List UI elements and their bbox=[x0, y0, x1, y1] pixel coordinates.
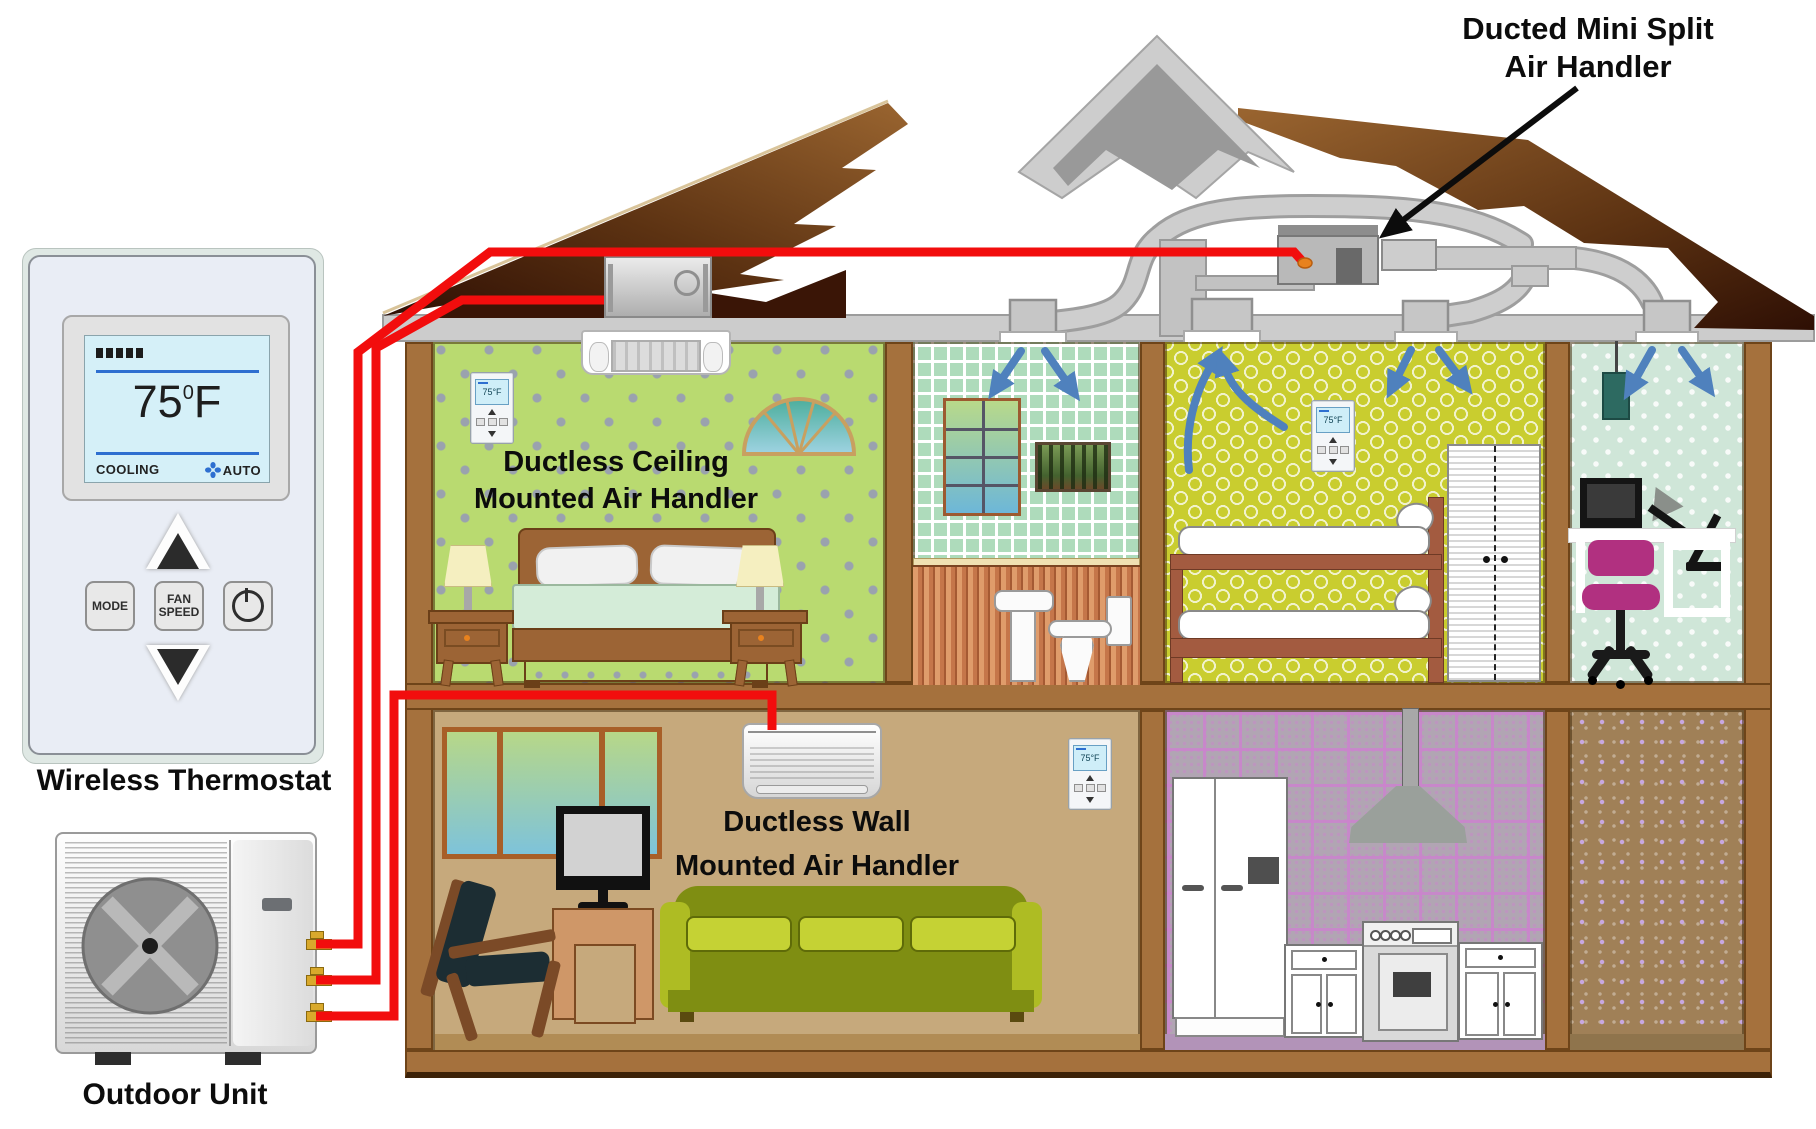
wall-thermostat-living: 75°F bbox=[1068, 738, 1112, 810]
refrigerator-base bbox=[1175, 1017, 1285, 1037]
wall-thermostat-bedroom: 75°F bbox=[470, 372, 514, 444]
label-ducted-air-handler: Ducted Mini SplitAir Handler bbox=[1408, 10, 1768, 86]
thermostat-display: 75°F bbox=[475, 379, 509, 405]
service-valve bbox=[310, 967, 324, 975]
thermostat-display: 75°F bbox=[1316, 407, 1350, 433]
wall-living-kitchen bbox=[1140, 710, 1165, 1050]
bathroom-window bbox=[943, 398, 1021, 516]
couch-cushion bbox=[686, 916, 792, 952]
down-arrow-icon bbox=[1086, 797, 1094, 803]
diagram-canvas: 75°F 75°F 75°F 750F COOLING bbox=[0, 0, 1816, 1129]
thermostat-lcd: 750F COOLING AUTO bbox=[84, 335, 270, 483]
couch-cushion bbox=[910, 916, 1016, 952]
up-arrow-icon bbox=[1086, 775, 1094, 781]
fan-icon bbox=[205, 462, 221, 478]
table-lamp bbox=[736, 545, 784, 587]
gable-outer bbox=[1019, 36, 1294, 198]
service-valve bbox=[306, 975, 332, 986]
wireless-thermostat: 750F COOLING AUTO MODE FANSPEED bbox=[28, 255, 316, 755]
toilet-seat bbox=[1048, 620, 1112, 638]
wall-bathroom-kids bbox=[1140, 342, 1165, 683]
label-wireless-thermostat: Wireless Thermostat bbox=[8, 764, 360, 798]
down-arrow-icon bbox=[1329, 459, 1337, 465]
fridge-dispenser bbox=[1248, 857, 1279, 884]
service-valve bbox=[310, 931, 324, 939]
empty-room-floor bbox=[1570, 1034, 1744, 1050]
duct-bathroom-supply bbox=[1042, 206, 1522, 323]
couch-cushion bbox=[798, 916, 904, 952]
cassette-logo-icon bbox=[674, 270, 700, 296]
thermostat-display: 75°F bbox=[1073, 745, 1107, 771]
chair-caster bbox=[1588, 676, 1597, 685]
cassette-flap bbox=[703, 342, 723, 372]
down-arrow-icon bbox=[488, 431, 496, 437]
return-duct-column bbox=[1160, 240, 1206, 336]
outdoor-unit-divider bbox=[229, 840, 231, 1046]
table-lamp bbox=[444, 545, 492, 587]
thermostat-buttons bbox=[1074, 784, 1106, 792]
air-handler-platform bbox=[1196, 276, 1314, 290]
label-ceiling-air-handler: Ductless CeilingMounted Air Handler bbox=[400, 444, 832, 518]
temperature-readout: 750F bbox=[85, 376, 269, 428]
wall-bedroom-bathroom bbox=[885, 342, 913, 683]
up-arrow-icon bbox=[488, 409, 496, 415]
up-arrow-icon bbox=[157, 533, 199, 569]
closet-knob bbox=[1501, 556, 1508, 563]
bed-leg bbox=[752, 680, 768, 688]
duct-kids-supply bbox=[1438, 266, 1528, 317]
fan-status: AUTO bbox=[205, 462, 261, 478]
bunkbed-rail bbox=[1170, 554, 1442, 570]
ceiling-vent-kids bbox=[1395, 301, 1457, 343]
range-hood-chimney bbox=[1402, 708, 1419, 788]
up-arrow-icon bbox=[1329, 437, 1337, 443]
wall-kids-office bbox=[1545, 342, 1570, 683]
outdoor-unit-foot bbox=[225, 1052, 261, 1065]
cassette-flap bbox=[589, 342, 609, 372]
office-chair-stem bbox=[1616, 610, 1625, 652]
supply-trunk-stub bbox=[1512, 266, 1548, 286]
couch-leg bbox=[1010, 1012, 1024, 1022]
wall-kitchen-empty bbox=[1545, 710, 1570, 1050]
armchair-seat-cushion bbox=[465, 951, 551, 987]
ducted-air-handler-unit bbox=[1278, 225, 1436, 284]
power-button[interactable] bbox=[223, 581, 273, 631]
roof-right-slope bbox=[1238, 108, 1814, 330]
down-arrow-icon bbox=[157, 649, 199, 685]
ceiling-cassette-unit bbox=[581, 330, 731, 375]
outdoor-unit-handle bbox=[262, 898, 292, 911]
line-connector-dot bbox=[1298, 258, 1312, 268]
outdoor-unit-panel bbox=[233, 840, 313, 1046]
outdoor-fan bbox=[65, 842, 227, 1044]
room-empty bbox=[1570, 710, 1744, 1050]
thermostat-buttons bbox=[1317, 446, 1349, 454]
chair-caster bbox=[1644, 676, 1653, 685]
outdoor-unit-foot bbox=[95, 1052, 131, 1065]
pendant-light bbox=[1602, 372, 1630, 420]
label-pointer-arrow bbox=[1398, 88, 1577, 224]
tv-table bbox=[552, 908, 654, 1020]
label-wall-air-handler: Ductless WallMounted Air Handler bbox=[592, 800, 1042, 888]
service-valve bbox=[306, 939, 332, 950]
signal-bars-icon bbox=[96, 345, 146, 363]
nightstand bbox=[436, 622, 508, 664]
nightstand bbox=[730, 622, 802, 664]
cassette-attic-box bbox=[604, 256, 712, 318]
wall-mounted-air-handler bbox=[742, 723, 882, 799]
bunkbed-mattress-top bbox=[1178, 526, 1430, 556]
toilet-tank bbox=[1106, 596, 1132, 646]
fridge-handle bbox=[1182, 885, 1204, 891]
gable-inner bbox=[1053, 64, 1260, 190]
chair-caster bbox=[1616, 680, 1625, 689]
office-chair-back bbox=[1588, 540, 1654, 576]
outdoor-unit bbox=[55, 832, 317, 1054]
bed-leg bbox=[524, 680, 540, 688]
couch-leg bbox=[680, 1012, 694, 1022]
supply-trunk-duct bbox=[1436, 247, 1576, 269]
power-icon bbox=[232, 590, 264, 622]
cassette-grille bbox=[611, 340, 701, 372]
floor-band bbox=[405, 683, 1772, 710]
sink-pedestal bbox=[1010, 610, 1036, 682]
fridge-handle bbox=[1221, 885, 1243, 891]
kitchen-cabinet bbox=[1458, 942, 1543, 1040]
desk-frame bbox=[1664, 541, 1730, 617]
couch-base bbox=[668, 990, 1034, 1012]
service-valve bbox=[310, 1003, 324, 1011]
mode-button[interactable]: MODE bbox=[85, 581, 135, 631]
kitchen-cabinet bbox=[1284, 944, 1364, 1038]
pendant-cord bbox=[1615, 341, 1618, 373]
foundation-band bbox=[405, 1050, 1772, 1078]
closet-knob bbox=[1483, 556, 1490, 563]
bed-pillow bbox=[535, 544, 638, 588]
fan-speed-button[interactable]: FANSPEED bbox=[154, 581, 204, 631]
thermostat-buttons bbox=[476, 418, 508, 426]
label-outdoor-unit: Outdoor Unit bbox=[40, 1078, 310, 1112]
wall-thermostat-kids: 75°F bbox=[1311, 400, 1355, 472]
service-valve bbox=[306, 1011, 332, 1022]
duct-office-supply bbox=[1574, 258, 1652, 302]
bunkbed-mattress-bottom bbox=[1178, 610, 1430, 640]
closet-louver-doors bbox=[1447, 444, 1541, 682]
bunkbed-rail bbox=[1170, 638, 1442, 658]
sink-basin bbox=[994, 590, 1054, 612]
stove-oven bbox=[1362, 921, 1459, 1042]
ceiling-vent-return bbox=[1184, 299, 1260, 343]
office-chair-seat bbox=[1582, 584, 1660, 610]
ceiling-vent-bathroom bbox=[1000, 300, 1066, 343]
ceiling-vent-office bbox=[1636, 301, 1698, 343]
thermostat-screen-bezel: 750F COOLING AUTO bbox=[62, 315, 290, 501]
refrigerator bbox=[1172, 777, 1288, 1019]
framed-picture bbox=[1035, 442, 1111, 492]
mode-status: COOLING bbox=[96, 462, 159, 477]
computer-monitor bbox=[1580, 478, 1642, 528]
